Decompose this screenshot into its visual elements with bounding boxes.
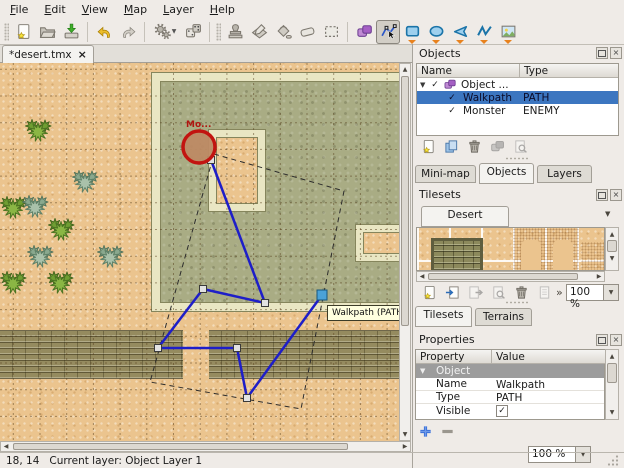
expander-icon[interactable]: ▼ bbox=[417, 81, 430, 89]
vertical-scroll-thumb[interactable] bbox=[401, 76, 409, 326]
toolbar-overflow-icon[interactable]: » bbox=[556, 286, 563, 299]
layer-name: Object ... bbox=[461, 79, 509, 91]
property-row-type[interactable]: Type PATH bbox=[416, 391, 604, 404]
export-tileset-button[interactable] bbox=[467, 284, 483, 300]
objects-column-name[interactable]: Name bbox=[417, 64, 520, 78]
cactus-green bbox=[48, 272, 74, 294]
objects-table: Name Type ▼ ✓ Object ... ✓ Walkpath PATH… bbox=[416, 63, 619, 136]
properties-table: Property Value ▼ Object Name Walkpath Ty… bbox=[415, 349, 605, 420]
insert-polyline-button[interactable] bbox=[472, 20, 496, 44]
object-type: PATH bbox=[523, 91, 549, 104]
scroll-down-icon[interactable]: ▼ bbox=[606, 407, 618, 418]
properties-column-property[interactable]: Property bbox=[416, 350, 492, 364]
close-panel-button[interactable]: × bbox=[610, 334, 622, 346]
new-file-icon bbox=[15, 23, 32, 40]
properties-panel-title: Properties bbox=[419, 333, 475, 346]
open-folder-icon bbox=[39, 23, 56, 40]
export-icon bbox=[468, 285, 483, 300]
menu-edit[interactable]: Edit bbox=[36, 1, 73, 18]
dock-splitter-handle[interactable] bbox=[505, 301, 529, 304]
properties-vertical-scrollbar[interactable]: ▲ ▼ bbox=[605, 349, 619, 420]
walkpath-object-row[interactable]: ✓ Walkpath PATH bbox=[417, 91, 618, 104]
random-mode-button[interactable] bbox=[181, 20, 205, 44]
gears-icon bbox=[154, 23, 171, 40]
insert-chevron-icon bbox=[408, 40, 416, 44]
save-icon bbox=[63, 23, 80, 40]
minus-icon bbox=[440, 424, 455, 439]
stamp-brush-button[interactable] bbox=[223, 20, 247, 44]
scroll-up-icon[interactable]: ▲ bbox=[606, 351, 618, 362]
new-map-button[interactable] bbox=[11, 20, 35, 44]
cactus-green bbox=[1, 272, 27, 294]
new-object-button[interactable] bbox=[419, 137, 437, 155]
tab-desert-tmx[interactable]: *desert.tmx × bbox=[2, 45, 94, 63]
plus-icon bbox=[418, 424, 433, 439]
trash-icon bbox=[467, 139, 482, 154]
float-icon bbox=[598, 192, 606, 199]
toolbar-separator bbox=[209, 22, 210, 42]
object-name: Monster bbox=[463, 105, 506, 117]
expander-icon[interactable]: ▼ bbox=[416, 367, 430, 375]
redo-button[interactable] bbox=[116, 20, 140, 44]
walkpath-polyline[interactable] bbox=[158, 160, 322, 398]
property-row-name[interactable]: Name Walkpath bbox=[416, 378, 604, 391]
menu-view[interactable]: View bbox=[74, 1, 116, 18]
open-map-button[interactable] bbox=[35, 20, 59, 44]
walkpath-tooltip: Walkpath (PATH) bbox=[327, 305, 399, 321]
menu-map[interactable]: Map bbox=[116, 1, 155, 18]
new-tileset-icon bbox=[422, 285, 437, 300]
selection-bounds bbox=[150, 154, 344, 409]
map-horizontal-scrollbar[interactable]: ◀ ▶ bbox=[0, 441, 411, 452]
undo-icon bbox=[96, 23, 113, 40]
rectangular-select-button[interactable] bbox=[319, 20, 343, 44]
object-name: Walkpath bbox=[463, 92, 512, 104]
scroll-right-icon[interactable]: ▶ bbox=[594, 272, 604, 282]
map-canvas[interactable]: Mo... Walkpath (PATH) bbox=[0, 63, 399, 441]
dropdown-icon[interactable]: ▼ bbox=[604, 284, 619, 301]
insert-chevron-icon bbox=[480, 40, 488, 44]
duplicate-object-button[interactable] bbox=[442, 137, 460, 155]
menu-layer[interactable]: Layer bbox=[155, 1, 202, 18]
property-group-object[interactable]: ▼ Object bbox=[416, 364, 604, 378]
insert-chevron-icon bbox=[456, 40, 464, 44]
add-property-button[interactable] bbox=[418, 424, 433, 439]
map-vertical-scrollbar[interactable]: ▲ ▼ bbox=[399, 63, 411, 441]
tilesets-panel-title: Tilesets bbox=[419, 188, 461, 201]
dock-panel-column: Objects × Name Type ▼ ✓ Object ... ✓ Wal… bbox=[412, 44, 624, 468]
stamp-icon bbox=[227, 23, 244, 40]
dropdown-arrow-icon: ▼ bbox=[172, 28, 177, 35]
selection-rect-icon bbox=[323, 23, 340, 40]
tileset-horizontal-scrollbar[interactable]: ◀ ▶ bbox=[416, 271, 605, 282]
document-tab-label: *desert.tmx bbox=[9, 49, 72, 61]
document-tab-bar: *desert.tmx × bbox=[0, 45, 412, 63]
insert-rectangle-button[interactable] bbox=[400, 20, 424, 44]
tab-terrains[interactable]: Terrains bbox=[475, 308, 532, 326]
insert-tile-object-button[interactable] bbox=[496, 20, 520, 44]
select-objects-button[interactable] bbox=[352, 20, 376, 44]
edit-polygons-icon bbox=[380, 23, 397, 40]
dice-icon bbox=[185, 23, 202, 40]
menu-bar: File Edit View Map Layer Help bbox=[0, 0, 624, 19]
object-type: ENEMY bbox=[523, 104, 560, 117]
monster-object-label: Mo... bbox=[186, 120, 211, 130]
edit-terrain-button[interactable] bbox=[536, 284, 552, 300]
path-node[interactable] bbox=[244, 395, 251, 402]
duplicate-icon bbox=[444, 139, 459, 154]
tileset-list-dropdown-icon[interactable]: ▼ bbox=[605, 210, 610, 218]
remove-tileset-button[interactable] bbox=[513, 284, 529, 300]
terrain-brush-button[interactable] bbox=[247, 20, 271, 44]
find-icon bbox=[513, 139, 528, 154]
float-panel-button[interactable] bbox=[596, 189, 608, 201]
float-icon bbox=[598, 337, 606, 344]
selected-path-node[interactable] bbox=[317, 290, 327, 300]
tileset-view[interactable] bbox=[416, 227, 605, 271]
cactus-green bbox=[26, 120, 52, 142]
close-panel-button[interactable]: × bbox=[610, 47, 622, 59]
path-node[interactable] bbox=[262, 300, 269, 307]
import-icon bbox=[445, 285, 460, 300]
polygon-object-icon bbox=[452, 23, 469, 40]
object-properties-button[interactable] bbox=[511, 137, 529, 155]
menu-help[interactable]: Help bbox=[202, 1, 243, 18]
current-layer-status: Current layer: Object Layer 1 bbox=[49, 455, 202, 467]
new-tileset-button[interactable] bbox=[421, 284, 437, 300]
polyline-object-icon bbox=[476, 23, 493, 40]
new-object-icon bbox=[421, 139, 436, 154]
cactus-green bbox=[1, 197, 27, 219]
cursor-tile-coordinates: 18, 14 bbox=[6, 455, 39, 467]
insert-polygon-button[interactable] bbox=[448, 20, 472, 44]
undo-button[interactable] bbox=[92, 20, 116, 44]
object-layer-row[interactable]: ▼ ✓ Object ... bbox=[417, 78, 618, 91]
float-icon bbox=[598, 50, 606, 57]
scroll-up-icon[interactable]: ▲ bbox=[606, 229, 618, 240]
select-objects-icon bbox=[356, 23, 373, 40]
scroll-right-icon[interactable]: ▶ bbox=[400, 442, 410, 452]
monster-ellipse-object[interactable] bbox=[183, 131, 215, 163]
properties-column-value[interactable]: Value bbox=[492, 350, 606, 364]
save-map-button[interactable] bbox=[59, 20, 83, 44]
object-layer-icon bbox=[443, 78, 457, 91]
property-value: PATH bbox=[496, 391, 522, 404]
cactus-sage bbox=[23, 196, 49, 218]
vertical-scroll-thumb[interactable] bbox=[607, 363, 617, 383]
bucket-icon bbox=[275, 23, 292, 40]
import-tileset-button[interactable] bbox=[444, 284, 460, 300]
property-name: Type bbox=[436, 391, 460, 403]
object-visible-checkbox[interactable]: ✓ bbox=[447, 93, 457, 103]
object-visible-checkbox[interactable]: ✓ bbox=[447, 106, 457, 116]
remove-property-button[interactable] bbox=[440, 424, 455, 439]
edit-polygons-button[interactable] bbox=[376, 20, 400, 44]
insert-chevron-icon bbox=[504, 40, 512, 44]
insert-chevron-icon bbox=[432, 40, 440, 44]
close-panel-button[interactable]: × bbox=[610, 189, 622, 201]
tileset-zoom-value[interactable]: 100 % bbox=[566, 284, 604, 301]
terrain-icon bbox=[251, 23, 268, 40]
toolbar-separator bbox=[87, 22, 88, 42]
tileset-vertical-scrollbar[interactable]: ▲ ▼ bbox=[605, 227, 619, 271]
dune-edge-tiles[interactable] bbox=[581, 242, 605, 271]
horizontal-scroll-thumb[interactable] bbox=[13, 443, 348, 450]
toolbar-separator bbox=[144, 22, 145, 42]
tileset-zoom-combo[interactable]: 100 % ▼ bbox=[566, 284, 619, 301]
monster-object-row[interactable]: ✓ Monster ENEMY bbox=[417, 104, 618, 117]
menu-file[interactable]: File bbox=[2, 1, 36, 18]
tiled-map-editor-window: File Edit View Map Layer Help ▼ bbox=[0, 0, 624, 468]
eraser-button[interactable] bbox=[295, 20, 319, 44]
tile-object-icon bbox=[500, 23, 517, 40]
float-panel-button[interactable] bbox=[596, 334, 608, 346]
layer-visible-checkbox[interactable]: ✓ bbox=[430, 80, 440, 90]
tileset-tab-desert[interactable]: Desert bbox=[421, 206, 509, 227]
toolbar-drag-handle[interactable] bbox=[4, 23, 9, 41]
move-object-button[interactable] bbox=[488, 137, 506, 155]
horizontal-scroll-thumb[interactable] bbox=[428, 273, 578, 280]
toolbar-separator bbox=[347, 22, 348, 42]
close-tab-icon[interactable]: × bbox=[78, 48, 87, 61]
scroll-down-icon[interactable]: ▼ bbox=[606, 253, 618, 264]
status-bar: 18, 14 Current layer: Object Layer 1 bbox=[0, 452, 624, 468]
property-row-visible[interactable]: Visible ✓ bbox=[416, 404, 604, 417]
move-objects-icon bbox=[490, 139, 505, 154]
remove-object-button[interactable] bbox=[465, 137, 483, 155]
redo-icon bbox=[120, 23, 137, 40]
tab-tilesets[interactable]: Tilesets bbox=[415, 306, 472, 327]
insert-ellipse-button[interactable] bbox=[424, 20, 448, 44]
float-panel-button[interactable] bbox=[596, 47, 608, 59]
objects-column-type[interactable]: Type bbox=[520, 64, 618, 78]
property-name: Name bbox=[436, 378, 467, 390]
bucket-fill-button[interactable] bbox=[271, 20, 295, 44]
property-value: Walkpath bbox=[496, 378, 545, 391]
visible-checkbox[interactable]: ✓ bbox=[496, 405, 508, 417]
trash-icon bbox=[514, 285, 529, 300]
tab-mini-map[interactable]: Mini-map bbox=[415, 165, 476, 183]
path-node[interactable] bbox=[234, 345, 241, 352]
scroll-left-icon[interactable]: ◀ bbox=[1, 442, 11, 452]
tileset-properties-button[interactable] bbox=[490, 284, 506, 300]
page-icon bbox=[537, 285, 552, 300]
brick-tile[interactable] bbox=[431, 238, 483, 271]
dock-splitter-handle[interactable] bbox=[505, 157, 529, 160]
scroll-left-icon[interactable]: ◀ bbox=[417, 272, 427, 282]
property-name: Visible bbox=[436, 405, 470, 417]
objects-panel-title: Objects bbox=[419, 47, 461, 60]
eraser-icon bbox=[299, 23, 316, 40]
scroll-down-icon[interactable]: ▼ bbox=[400, 429, 410, 440]
toolbar-drag-handle[interactable] bbox=[216, 23, 221, 41]
tab-objects[interactable]: Objects bbox=[479, 163, 534, 184]
scroll-up-icon[interactable]: ▲ bbox=[400, 64, 410, 75]
main-toolbar: ▼ bbox=[0, 19, 624, 45]
path-node[interactable] bbox=[200, 286, 207, 293]
tab-layers[interactable]: Layers bbox=[537, 165, 592, 183]
vertical-scroll-thumb[interactable] bbox=[607, 240, 617, 252]
find-icon bbox=[491, 285, 506, 300]
commands-button[interactable]: ▼ bbox=[149, 20, 181, 44]
ellipse-object-icon bbox=[428, 23, 445, 40]
property-group-label: Object bbox=[436, 365, 470, 377]
rectangle-object-icon bbox=[404, 23, 421, 40]
cactus-sage bbox=[73, 171, 99, 193]
path-node[interactable] bbox=[155, 345, 162, 352]
